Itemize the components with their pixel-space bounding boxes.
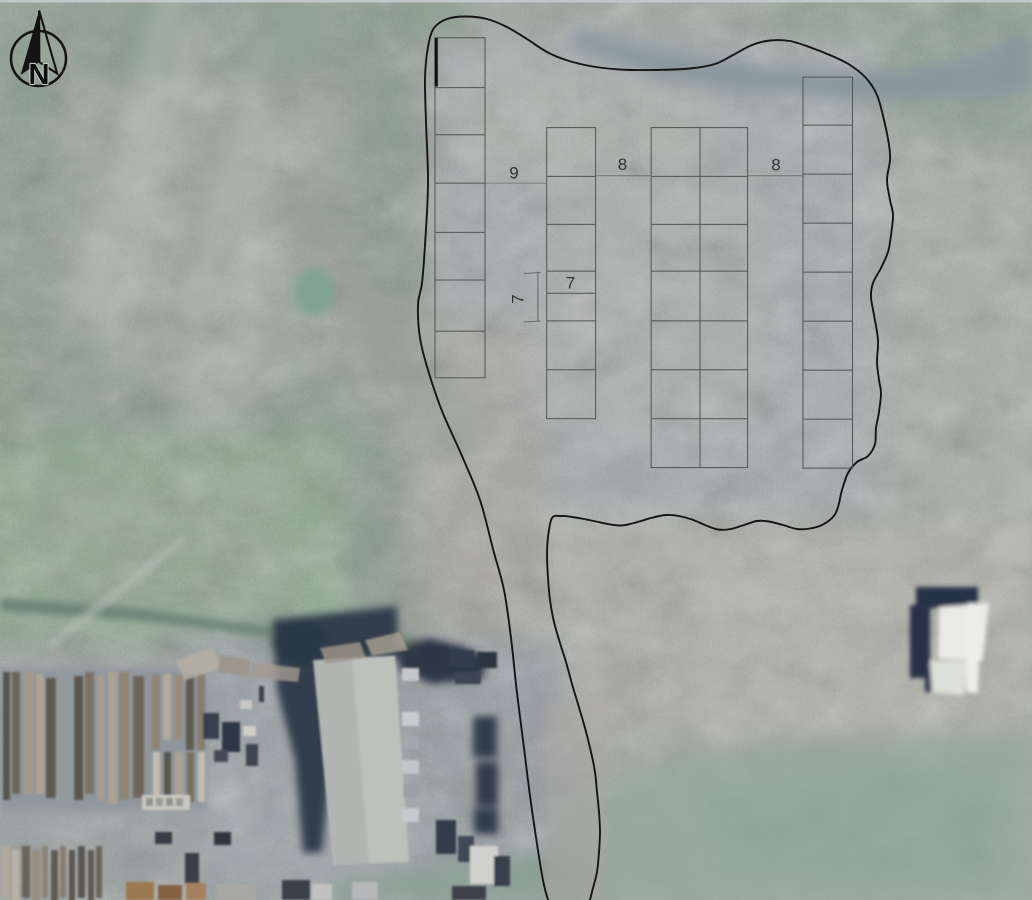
- svg-text:8: 8: [618, 155, 627, 174]
- svg-text:8: 8: [771, 156, 780, 175]
- svg-text:7: 7: [509, 294, 528, 303]
- svg-text:9: 9: [509, 164, 518, 183]
- svg-text:7: 7: [566, 274, 575, 293]
- svg-text:N: N: [29, 59, 50, 91]
